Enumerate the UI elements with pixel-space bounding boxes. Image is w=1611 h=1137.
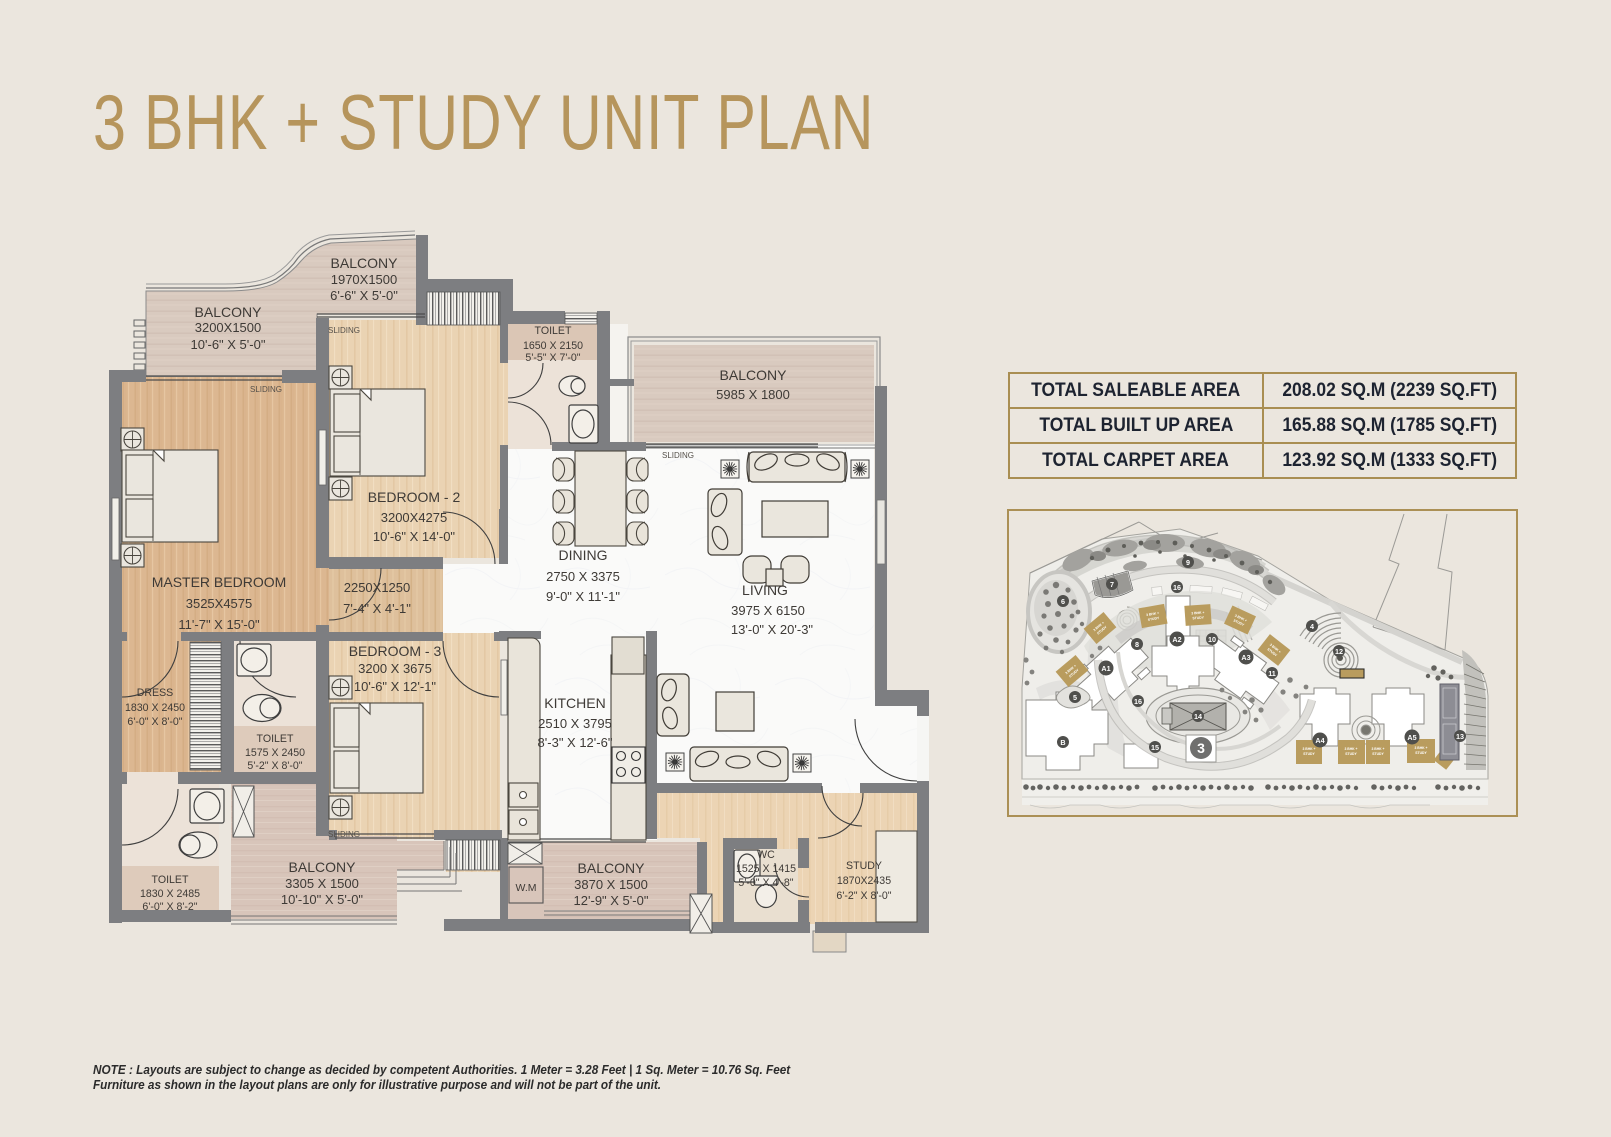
svg-text:3 BHK +: 3 BHK + bbox=[1344, 747, 1357, 751]
svg-text:8'-3" X 12'-6": 8'-3" X 12'-6" bbox=[538, 735, 613, 750]
svg-text:3975 X 6150: 3975 X 6150 bbox=[731, 603, 805, 618]
svg-text:SLIDING: SLIDING bbox=[662, 451, 694, 460]
svg-text:BALCONY: BALCONY bbox=[331, 255, 399, 271]
svg-text:KITCHEN: KITCHEN bbox=[544, 695, 605, 711]
svg-text:W.M: W.M bbox=[516, 882, 537, 894]
svg-text:9: 9 bbox=[1186, 558, 1190, 567]
svg-text:3870 X 1500: 3870 X 1500 bbox=[574, 877, 648, 892]
svg-text:3200 X 3675: 3200 X 3675 bbox=[358, 661, 432, 676]
svg-text:A4: A4 bbox=[1315, 736, 1324, 745]
svg-text:STUDY: STUDY bbox=[1415, 751, 1427, 755]
svg-text:1870X2435: 1870X2435 bbox=[837, 875, 891, 887]
svg-text:LIVING: LIVING bbox=[742, 582, 788, 598]
svg-text:6'-6" X 5'-0": 6'-6" X 5'-0" bbox=[330, 288, 398, 303]
svg-text:3305 X 1500: 3305 X 1500 bbox=[285, 876, 359, 891]
svg-text:1830 X 2485: 1830 X 2485 bbox=[140, 888, 200, 900]
svg-text:2510 X 3795: 2510 X 3795 bbox=[538, 716, 612, 731]
svg-text:3: 3 bbox=[1197, 740, 1205, 756]
svg-text:13: 13 bbox=[1456, 732, 1464, 741]
svg-text:TOILET: TOILET bbox=[535, 325, 572, 337]
svg-text:6: 6 bbox=[1061, 597, 1065, 606]
svg-text:16: 16 bbox=[1134, 697, 1142, 706]
svg-text:3200X1500: 3200X1500 bbox=[195, 320, 262, 335]
svg-text:STUDY: STUDY bbox=[1192, 616, 1204, 621]
svg-text:10'-6" X 5'-0": 10'-6" X 5'-0" bbox=[191, 337, 266, 352]
svg-text:A3: A3 bbox=[1241, 653, 1250, 662]
svg-text:BALCONY: BALCONY bbox=[578, 860, 646, 876]
svg-text:1650 X 2150: 1650 X 2150 bbox=[523, 340, 583, 352]
svg-text:16: 16 bbox=[1173, 583, 1181, 592]
svg-text:TOILET: TOILET bbox=[152, 874, 189, 886]
svg-text:2750 X 3375: 2750 X 3375 bbox=[546, 569, 620, 584]
svg-text:STUDY: STUDY bbox=[1345, 752, 1357, 756]
svg-text:SLIDING: SLIDING bbox=[250, 385, 282, 394]
svg-text:BALCONY: BALCONY bbox=[289, 859, 357, 875]
svg-text:7: 7 bbox=[1110, 580, 1114, 589]
svg-text:5'-2" X 8'-0": 5'-2" X 8'-0" bbox=[247, 760, 302, 772]
svg-text:15: 15 bbox=[1151, 743, 1159, 752]
svg-text:12: 12 bbox=[1335, 647, 1343, 656]
svg-text:A1: A1 bbox=[1101, 664, 1110, 673]
svg-text:6'-0" X 8'-2": 6'-0" X 8'-2" bbox=[142, 901, 197, 913]
svg-text:13'-0" X 20'-3": 13'-0" X 20'-3" bbox=[731, 622, 814, 637]
svg-text:14: 14 bbox=[1194, 712, 1202, 721]
svg-text:12'-9" X 5'-0": 12'-9" X 5'-0" bbox=[574, 893, 649, 908]
svg-text:5985 X 1800: 5985 X 1800 bbox=[716, 387, 790, 402]
svg-text:DRESS: DRESS bbox=[137, 687, 174, 699]
svg-text:BEDROOM - 2: BEDROOM - 2 bbox=[368, 489, 461, 505]
svg-text:10: 10 bbox=[1208, 635, 1216, 644]
svg-text:6'-0" X 8'-0": 6'-0" X 8'-0" bbox=[127, 716, 182, 728]
svg-text:6'-2" X 8'-0": 6'-2" X 8'-0" bbox=[836, 890, 891, 902]
svg-text:4: 4 bbox=[1310, 622, 1314, 631]
svg-text:3 BHK +: 3 BHK + bbox=[1371, 747, 1384, 751]
svg-text:STUDY: STUDY bbox=[1372, 752, 1384, 756]
svg-text:MASTER BEDROOM: MASTER BEDROOM bbox=[152, 574, 287, 590]
svg-text:3200X4275: 3200X4275 bbox=[381, 510, 448, 525]
svg-text:3 BHK +: 3 BHK + bbox=[1414, 746, 1427, 750]
svg-text:BALCONY: BALCONY bbox=[720, 367, 788, 383]
svg-text:7'-4" X 4'-1": 7'-4" X 4'-1" bbox=[343, 601, 411, 616]
svg-text:3525X4575: 3525X4575 bbox=[186, 596, 253, 611]
svg-text:B: B bbox=[1060, 738, 1065, 747]
svg-text:A2: A2 bbox=[1172, 635, 1181, 644]
svg-text:A5: A5 bbox=[1407, 733, 1416, 742]
svg-text:STUDY: STUDY bbox=[1303, 752, 1315, 756]
svg-text:5'-5" X 7'-0": 5'-5" X 7'-0" bbox=[525, 352, 580, 364]
svg-text:STUDY: STUDY bbox=[846, 860, 882, 872]
svg-text:1525 X 1415: 1525 X 1415 bbox=[736, 863, 796, 875]
svg-text:1575 X 2450: 1575 X 2450 bbox=[245, 747, 305, 759]
svg-text:5: 5 bbox=[1073, 693, 1077, 702]
svg-text:SLIDING: SLIDING bbox=[328, 830, 360, 839]
svg-text:1830 X 2450: 1830 X 2450 bbox=[125, 702, 185, 714]
svg-text:9'-0" X 11'-1": 9'-0" X 11'-1" bbox=[546, 589, 620, 604]
svg-text:10'-10" X 5'-0": 10'-10" X 5'-0" bbox=[281, 892, 364, 907]
svg-text:DINING: DINING bbox=[559, 547, 608, 563]
svg-text:8: 8 bbox=[1135, 640, 1139, 649]
svg-text:11: 11 bbox=[1268, 669, 1276, 678]
svg-text:SLIDING: SLIDING bbox=[328, 326, 360, 335]
svg-text:10'-6" X 12'-1": 10'-6" X 12'-1" bbox=[354, 679, 437, 694]
svg-text:BALCONY: BALCONY bbox=[195, 304, 263, 320]
svg-text:3 BHK +: 3 BHK + bbox=[1302, 747, 1315, 751]
svg-text:BEDROOM - 3: BEDROOM - 3 bbox=[349, 643, 442, 659]
svg-text:11'-7" X 15'-0": 11'-7" X 15'-0" bbox=[178, 617, 260, 632]
svg-text:2250X1250: 2250X1250 bbox=[344, 580, 411, 595]
svg-text:WC: WC bbox=[757, 849, 775, 861]
svg-text:10'-6" X 14'-0": 10'-6" X 14'-0" bbox=[373, 529, 456, 544]
svg-text:1970X1500: 1970X1500 bbox=[331, 272, 398, 287]
svg-text:TOILET: TOILET bbox=[257, 733, 294, 745]
svg-text:5'-0" X 4'-8": 5'-0" X 4'-8" bbox=[738, 877, 793, 889]
